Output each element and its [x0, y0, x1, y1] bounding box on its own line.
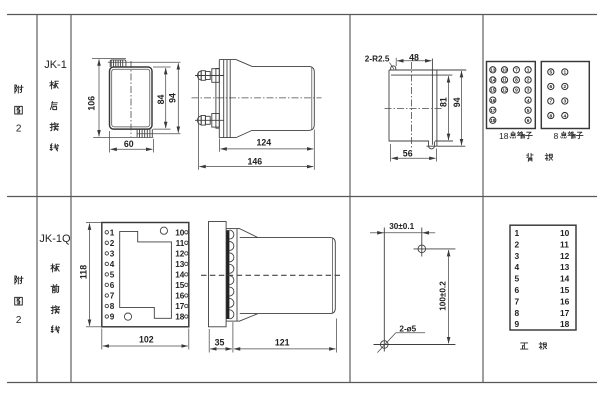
svg-text:4: 4	[527, 98, 530, 104]
svg-text:3: 3	[515, 251, 520, 261]
svg-text:9: 9	[110, 313, 115, 322]
svg-text:18: 18	[499, 131, 509, 141]
svg-text:5: 5	[527, 108, 530, 114]
svg-text:9: 9	[515, 319, 520, 329]
svg-text:102: 102	[139, 335, 154, 345]
svg-text:7: 7	[515, 296, 520, 306]
svg-text:18: 18	[490, 118, 495, 123]
svg-text:14: 14	[560, 274, 570, 284]
svg-text:14: 14	[175, 271, 185, 280]
svg-text:10: 10	[175, 228, 185, 237]
svg-text:60: 60	[124, 139, 134, 149]
svg-text:8: 8	[554, 131, 559, 141]
svg-text:8: 8	[515, 78, 518, 84]
svg-text:7: 7	[515, 68, 518, 74]
svg-text:6: 6	[549, 84, 552, 90]
svg-text:6: 6	[527, 118, 530, 124]
svg-text:124: 124	[256, 137, 271, 147]
svg-text:15: 15	[490, 88, 495, 93]
svg-text:13: 13	[490, 68, 495, 73]
svg-text:84: 84	[156, 95, 166, 105]
svg-text:146: 146	[247, 157, 262, 167]
svg-text:7: 7	[110, 292, 115, 301]
svg-text:12: 12	[502, 88, 507, 93]
svg-text:6: 6	[515, 285, 520, 295]
svg-text:121: 121	[275, 337, 290, 347]
svg-text:18: 18	[560, 319, 570, 329]
svg-text:10: 10	[560, 228, 570, 238]
svg-text:2: 2	[563, 84, 566, 90]
svg-text:16: 16	[560, 296, 570, 306]
svg-text:17: 17	[490, 108, 495, 113]
svg-text:3: 3	[563, 99, 566, 105]
svg-text:3: 3	[527, 88, 530, 94]
svg-text:1: 1	[110, 228, 115, 237]
svg-text:15: 15	[560, 285, 570, 295]
svg-text:100±0.2: 100±0.2	[439, 281, 448, 311]
svg-text:2: 2	[16, 124, 22, 135]
svg-text:48: 48	[409, 52, 419, 62]
svg-text:2-R2.5: 2-R2.5	[365, 55, 390, 64]
svg-text:106: 106	[86, 96, 96, 111]
svg-text:8: 8	[515, 308, 520, 318]
svg-text:13: 13	[560, 262, 570, 272]
svg-text:18: 18	[175, 313, 185, 322]
svg-text:94: 94	[167, 93, 177, 103]
svg-text:1: 1	[563, 70, 566, 76]
svg-text:17: 17	[175, 302, 185, 311]
svg-text:12: 12	[560, 251, 570, 261]
svg-text:15: 15	[175, 281, 185, 290]
svg-text:4: 4	[110, 260, 115, 269]
svg-text:2: 2	[527, 78, 530, 84]
svg-text:14: 14	[490, 78, 495, 83]
svg-text:5: 5	[110, 271, 115, 280]
svg-text:94: 94	[452, 97, 462, 107]
svg-text:16: 16	[175, 292, 185, 301]
svg-text:8: 8	[549, 113, 552, 119]
svg-text:8: 8	[110, 302, 115, 311]
svg-text:11: 11	[560, 239, 569, 249]
svg-text:3: 3	[110, 250, 115, 259]
svg-text:7: 7	[549, 99, 552, 105]
svg-text:6: 6	[110, 281, 115, 290]
svg-text:9: 9	[515, 88, 518, 94]
svg-text:JK-1Q: JK-1Q	[39, 233, 71, 245]
svg-text:118: 118	[78, 265, 88, 279]
svg-text:JK-1: JK-1	[44, 59, 67, 71]
svg-text:2: 2	[16, 315, 22, 326]
svg-text:11: 11	[176, 239, 185, 248]
svg-text:81: 81	[438, 97, 448, 107]
svg-text:4: 4	[515, 262, 520, 272]
svg-text:5: 5	[515, 274, 520, 284]
svg-text:4: 4	[563, 113, 566, 119]
svg-text:2: 2	[515, 239, 520, 249]
svg-text:1: 1	[515, 228, 520, 238]
svg-text:2-ø5: 2-ø5	[399, 325, 416, 334]
svg-text:13: 13	[175, 260, 185, 269]
svg-text:17: 17	[560, 308, 570, 318]
svg-text:11: 11	[502, 78, 507, 83]
svg-text:56: 56	[403, 149, 413, 159]
svg-text:2: 2	[110, 239, 115, 248]
svg-text:5: 5	[549, 70, 552, 76]
svg-text:1: 1	[527, 68, 530, 74]
svg-text:12: 12	[175, 250, 185, 259]
svg-text:30±0.1: 30±0.1	[389, 222, 414, 231]
svg-text:16: 16	[490, 98, 495, 103]
svg-text:35: 35	[215, 337, 225, 347]
svg-text:10: 10	[502, 68, 507, 73]
